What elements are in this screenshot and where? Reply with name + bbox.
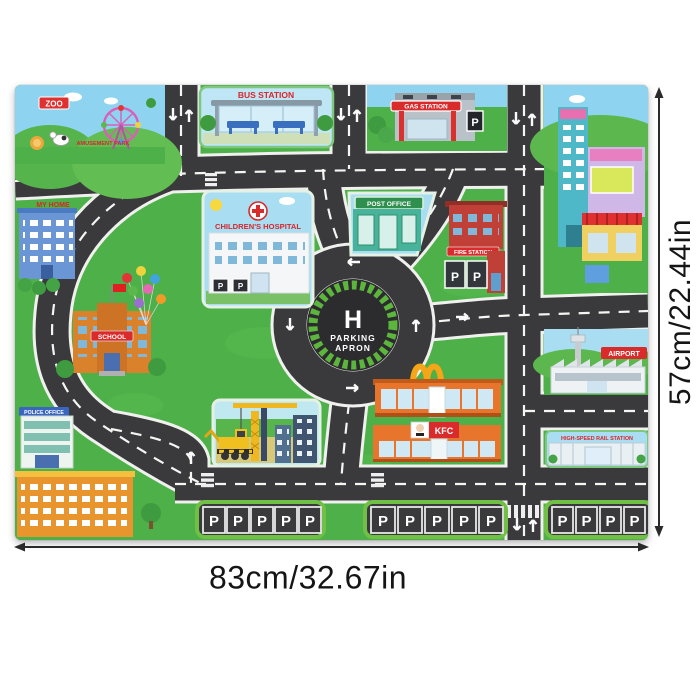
kfc-label: KFC (435, 426, 454, 436)
colonel-face-icon (416, 424, 424, 432)
tree-icon (141, 503, 161, 523)
height-dimension-label: 57cm/22.44in (664, 219, 698, 405)
billboard (591, 167, 633, 193)
tree-icon (317, 115, 333, 131)
width-dimension-arrow (13, 538, 650, 556)
parking-p: P (378, 513, 388, 530)
parking-row: P P P P P (365, 502, 506, 537)
parking-row: P P P P P (197, 502, 324, 537)
zone-rail-station: HIGH-SPEED RAIL STATION (546, 431, 648, 467)
parking-p: P (405, 513, 415, 530)
airport-label: AIRPORT (608, 351, 640, 358)
parking-p: P (629, 513, 639, 530)
parking-p: P (257, 513, 267, 530)
parking-row: P P P P (546, 502, 648, 537)
zone-construction (205, 400, 320, 466)
door (41, 265, 53, 279)
tree-icon (146, 98, 156, 108)
rail-station-label: HIGH-SPEED RAIL STATION (561, 436, 633, 442)
bus-station-label: BUS STATION (238, 90, 294, 100)
post-office-label: POST OFFICE (367, 201, 412, 208)
zone-amusement-park: ZOO AMUSEMENT PARK (15, 85, 182, 199)
police-office-label: POLICE OFFICE (24, 410, 64, 416)
parking-p: P (305, 513, 315, 530)
sun-icon (210, 199, 222, 211)
zone-bus-station: BUS STATION (200, 87, 333, 147)
childrens-hospital-label: CHILDREN'S HOSPITAL (215, 222, 301, 231)
flag-icon (113, 284, 126, 292)
zoo-sign: ZOO (39, 97, 69, 109)
play-mat-art: H PARKING APRON (15, 85, 648, 540)
my-home-label: MY HOME (36, 202, 70, 209)
parking-p: P (473, 270, 481, 284)
amusement-park-label: AMUSEMENT PARK (76, 141, 129, 147)
parking-sign: P (467, 111, 483, 131)
cloud-icon (279, 197, 295, 205)
parking-p: P (218, 282, 224, 291)
tree-icon (148, 358, 166, 376)
zoo-label: ZOO (45, 100, 62, 109)
parking-p: P (209, 513, 219, 530)
product-image: H PARKING APRON (0, 0, 700, 700)
parking-p: P (471, 117, 478, 129)
zone-kfc: KFC (373, 422, 501, 462)
airport-sign: AIRPORT (601, 347, 647, 359)
tree-icon (56, 360, 74, 378)
parking-sign: P (445, 261, 465, 288)
entrance (585, 447, 611, 465)
zone-airport: AIRPORT (533, 327, 648, 395)
school-label: SCHOOL (98, 334, 126, 341)
parking-p: P (432, 513, 442, 530)
gas-station-label: GAS STATION (404, 104, 448, 111)
red-cross-icon (249, 202, 267, 220)
parking-p: P (451, 270, 459, 284)
parking-p: P (233, 513, 243, 530)
parking-p: P (486, 513, 496, 530)
door (104, 353, 120, 373)
parking-p: P (459, 513, 469, 530)
parking-p: P (581, 513, 591, 530)
parking-sign: P (467, 261, 487, 288)
lion-icon (30, 136, 44, 150)
cloud-icon (569, 95, 585, 103)
play-mat: H PARKING APRON (15, 85, 648, 540)
door (431, 439, 447, 461)
bus-shelter-roof (211, 100, 322, 106)
zone-fire-station: FIRE STATION P P (445, 201, 507, 293)
zone-gas-station: GAS STATION P (367, 85, 507, 151)
cloud-icon (104, 98, 118, 105)
zone-childrens-hospital: CHILDREN'S HOSPITAL P P (203, 191, 313, 307)
parking-p: P (557, 513, 567, 530)
entrance (35, 455, 59, 468)
tree-icon (200, 115, 216, 131)
helipad-parking-label: PARKING (330, 333, 376, 343)
zone-shops (530, 85, 648, 293)
helipad-apron-label: APRON (335, 343, 371, 353)
door (429, 387, 445, 417)
parking-p: P (281, 513, 291, 530)
parking-p: P (238, 282, 244, 291)
parking-p: P (605, 513, 615, 530)
fire-station-label: FIRE STATION (454, 250, 492, 256)
helipad-h-label: H (344, 306, 362, 334)
width-dimension-label: 83cm/32.67in (209, 560, 407, 597)
door (491, 273, 501, 291)
parking-sign: P (213, 279, 228, 292)
parking-sign: P (233, 279, 248, 292)
kfc-sign: KFC (411, 422, 459, 438)
entrance (251, 273, 269, 293)
